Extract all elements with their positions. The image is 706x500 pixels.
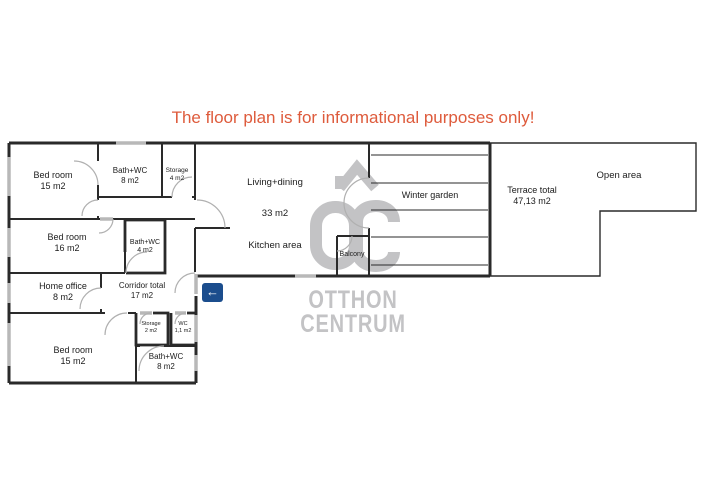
room-label-living-area: 33 m2 [225,208,325,219]
room-label-winter-garden: Winter garden [380,190,480,201]
room-label-open-area: Open area [569,170,669,181]
winter-garden-stripes [371,155,488,265]
room-label-bedroom-bottom: Bed room 15 m2 [23,345,123,367]
room-label-bath-top: Bath+WC 8 m2 [100,166,160,185]
door-arcs [74,161,369,371]
room-label-terrace: Terrace total 47,13 m2 [482,185,582,207]
floor-plan-image: The floor plan is for informational purp… [0,0,706,500]
room-label-wc: WC 1,1 m2 [163,321,203,334]
entrance-arrow-icon: ← [202,283,223,302]
room-label-living: Living+dining [225,177,325,188]
room-label-kitchen: Kitchen area [225,240,325,251]
room-label-bath-bottom: Bath+WC 8 m2 [136,352,196,371]
room-label-home-office: Home office 8 m2 [13,281,113,303]
room-label-bedroom-mid: Bed room 16 m2 [17,232,117,254]
room-label-corridor: Corridor total 17 m2 [102,281,182,300]
room-label-bedroom-top: Bed room 15 m2 [13,170,93,192]
room-label-storage-top: Storage 4 m2 [152,167,202,183]
room-label-bath-mid: Bath+WC 4 m2 [120,239,170,256]
terrace-outline [490,143,696,276]
room-label-balcony: Balcony [332,251,372,259]
